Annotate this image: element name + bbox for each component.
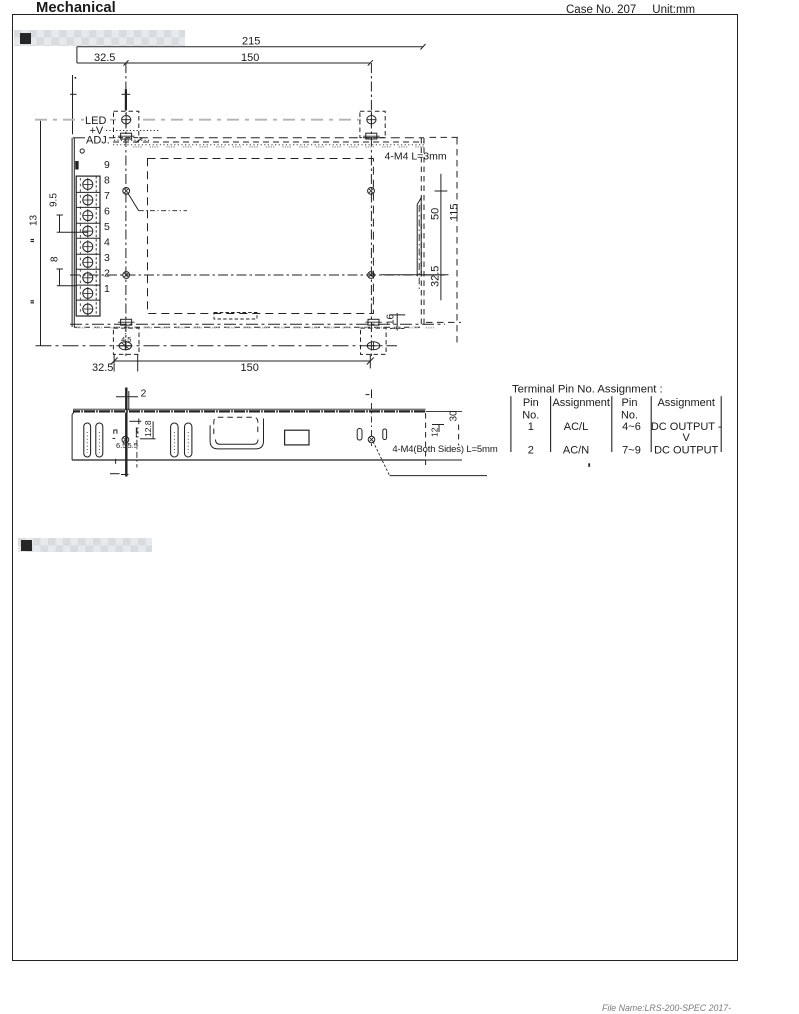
svg-text:2: 2 <box>141 388 147 400</box>
svg-text:115: 115 <box>449 203 461 221</box>
svg-text:12: 12 <box>430 427 440 437</box>
svg-text:No.: No. <box>621 410 638 422</box>
svg-text:9.5: 9.5 <box>49 193 60 207</box>
svg-text:Pin: Pin <box>523 397 539 409</box>
svg-text:215: 215 <box>242 36 260 48</box>
svg-text:7: 7 <box>104 190 110 202</box>
svg-text:6: 6 <box>104 206 110 218</box>
svg-text:4~6: 4~6 <box>622 421 641 433</box>
svg-text:13: 13 <box>29 214 40 226</box>
svg-text:Pin: Pin <box>622 397 638 409</box>
svg-text:5.5: 5.5 <box>128 441 138 450</box>
svg-text:7~9: 7~9 <box>622 445 641 457</box>
svg-text:DC OUTPUT: DC OUTPUT <box>654 445 718 457</box>
svg-text:2: 2 <box>104 268 110 280</box>
svg-text:150: 150 <box>241 362 259 374</box>
svg-text:1: 1 <box>104 283 110 295</box>
svg-text:No.: No. <box>522 410 539 422</box>
svg-text:16: 16 <box>386 313 397 325</box>
svg-text:ADJ.: ADJ. <box>86 135 110 147</box>
svg-text:3: 3 <box>104 252 110 264</box>
svg-text:4-M4 L=3mm: 4-M4 L=3mm <box>385 151 447 163</box>
svg-text:150: 150 <box>241 52 259 64</box>
svg-text:2: 2 <box>528 445 534 457</box>
svg-text:32.5: 32.5 <box>94 52 115 64</box>
svg-text:12.8: 12.8 <box>143 420 153 437</box>
svg-text:4.5: 4.5 <box>121 335 131 344</box>
svg-text:9: 9 <box>104 159 110 171</box>
svg-text:32.5: 32.5 <box>92 362 113 374</box>
svg-text:5: 5 <box>104 221 110 233</box>
svg-text:AC/L: AC/L <box>564 421 588 433</box>
svg-text:50: 50 <box>430 208 442 220</box>
svg-text:1: 1 <box>528 421 534 433</box>
svg-text:Assignment: Assignment <box>657 397 714 409</box>
svg-text:Assignment: Assignment <box>552 397 609 409</box>
svg-text:32.5: 32.5 <box>430 266 442 287</box>
svg-text:Terminal Pin No. Assignment :: Terminal Pin No. Assignment : <box>512 384 663 396</box>
svg-text:4-M4(Both Sides) L=5mm: 4-M4(Both Sides) L=5mm <box>392 444 497 455</box>
svg-text:AC/N: AC/N <box>563 445 589 457</box>
svg-text:8: 8 <box>104 175 110 187</box>
svg-text:4: 4 <box>104 237 110 249</box>
svg-text:30: 30 <box>449 410 460 422</box>
svg-text:V: V <box>683 432 691 444</box>
svg-text:8: 8 <box>50 256 61 262</box>
svg-text:6.5: 6.5 <box>116 441 126 450</box>
